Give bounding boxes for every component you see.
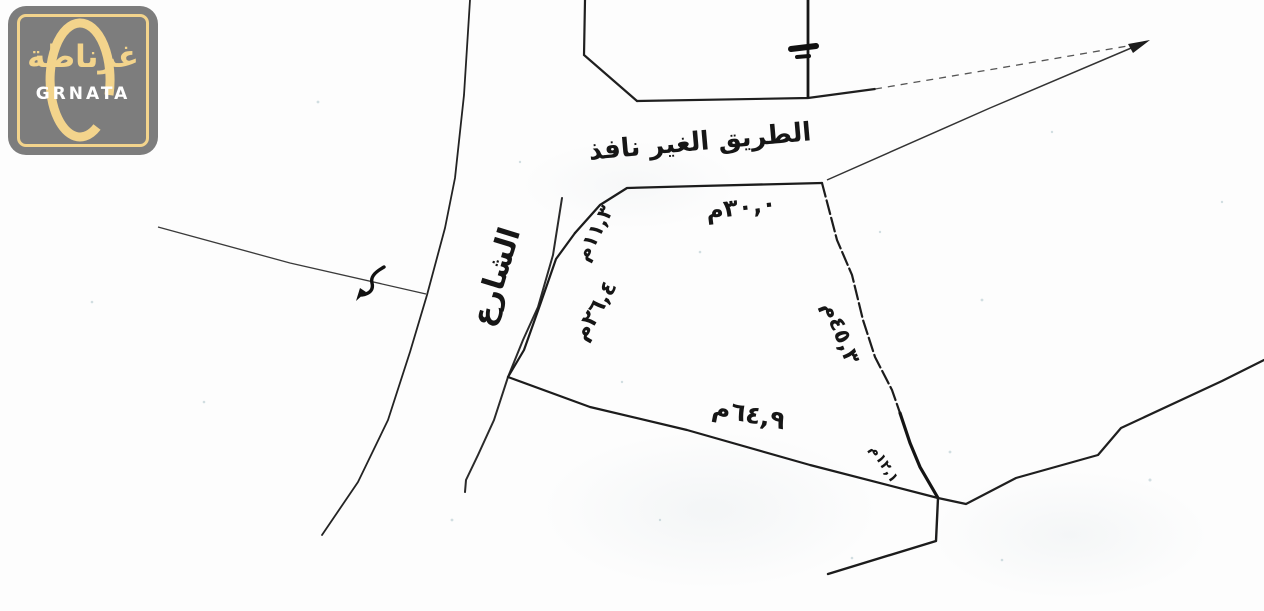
- logo-latin-name: GRNATA: [8, 86, 158, 103]
- road-left-edge-line: [322, 0, 470, 535]
- logo-monogram-oval: [8, 6, 158, 155]
- parcel-right-edge: [822, 183, 900, 413]
- north-neighbour-boundary: [584, 0, 637, 101]
- scan-speckles: [91, 101, 1224, 562]
- logo-arabic-name: غرناطة: [8, 42, 158, 73]
- grnata-logo: غرناطة GRNATA: [8, 6, 158, 155]
- parcel-right-edge-lower: [900, 413, 938, 498]
- corner-ray-boundary: [827, 43, 1143, 180]
- survey-sketch-page: غرناطة GRNATA الطريق الغير نافذ ٣٠,٠م ١١…: [0, 0, 1264, 611]
- west-thin-boundary: [158, 227, 426, 294]
- convergence-arrow-tip: [1128, 40, 1150, 53]
- sketch-linework: [0, 0, 1264, 611]
- south-stub-boundary: [828, 498, 938, 574]
- pole-symbol: [791, 46, 816, 57]
- parcel-top-edge: [575, 183, 822, 233]
- north-boundary-dashed: [875, 43, 1145, 89]
- lane-north-boundary: [637, 89, 875, 101]
- southeast-boundary: [938, 360, 1264, 504]
